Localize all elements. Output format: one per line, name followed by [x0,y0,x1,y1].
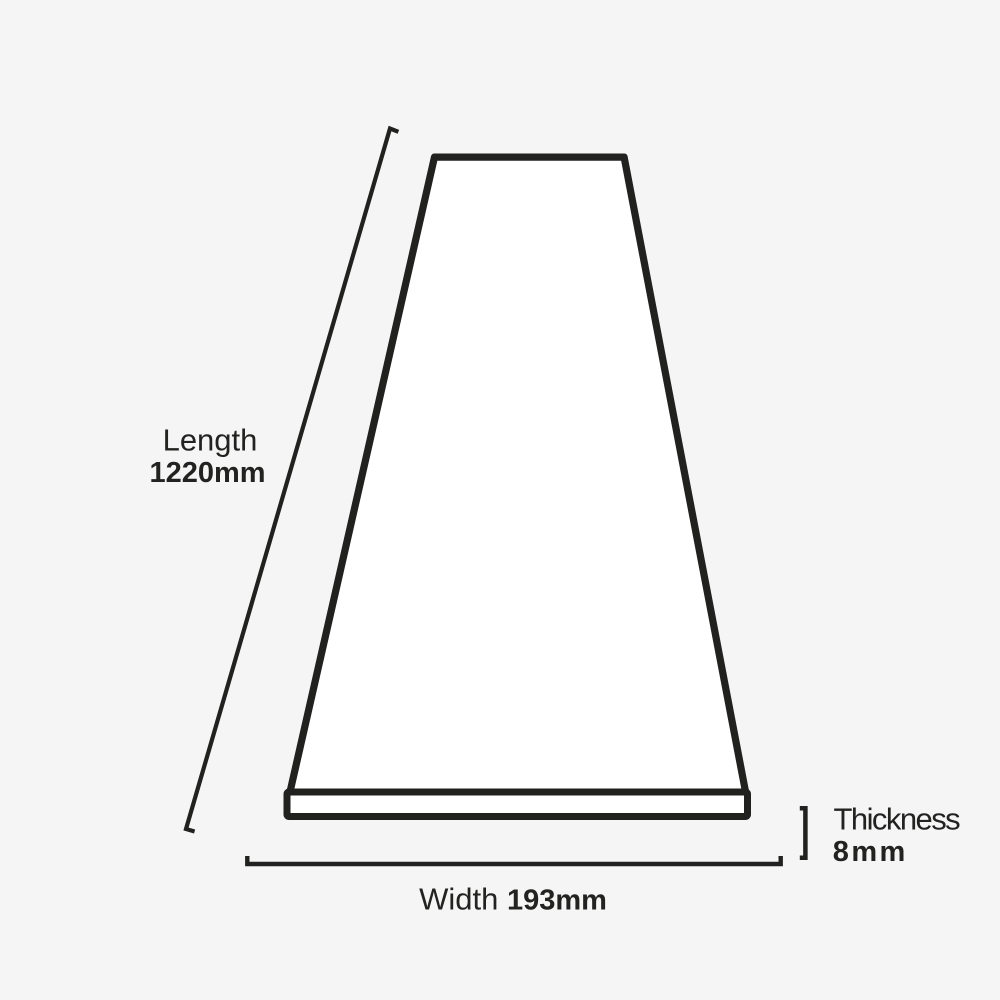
svg-text:Length: Length [163,423,258,458]
svg-text:8mm: 8mm [833,836,908,868]
svg-text:Thickness: Thickness [834,802,961,837]
svg-text:1220mm: 1220mm [149,457,265,489]
svg-text:Width 193mm: Width 193mm [419,882,607,917]
